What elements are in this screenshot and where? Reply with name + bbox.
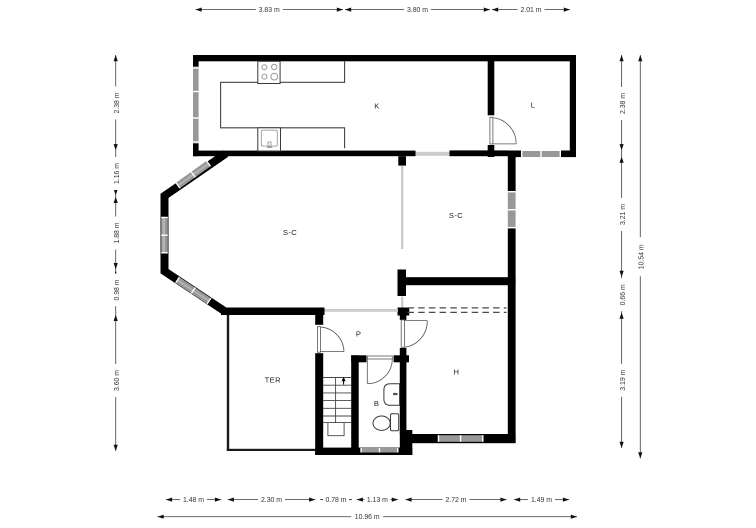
svg-text:0.66 m: 0.66 m — [620, 284, 627, 305]
svg-text:1.88 m: 1.88 m — [114, 222, 121, 243]
svg-text:1.13 m: 1.13 m — [367, 497, 388, 504]
svg-text:L: L — [531, 101, 536, 110]
svg-text:S-C: S-C — [449, 211, 463, 220]
svg-text:H: H — [454, 368, 460, 377]
svg-text:1.16 m: 1.16 m — [114, 163, 121, 184]
svg-text:2.38 m: 2.38 m — [620, 93, 627, 114]
svg-text:3.83 m: 3.83 m — [259, 7, 280, 14]
svg-text:2.30 m: 2.30 m — [261, 497, 282, 504]
svg-text:1.49 m: 1.49 m — [531, 497, 552, 504]
svg-text:2.72 m: 2.72 m — [445, 497, 466, 504]
svg-text:K: K — [374, 101, 379, 110]
svg-text:3.19 m: 3.19 m — [620, 369, 627, 390]
svg-text:TER: TER — [265, 376, 282, 385]
svg-text:0.98 m: 0.98 m — [114, 279, 121, 300]
svg-text:3.80 m: 3.80 m — [407, 7, 428, 14]
svg-text:P: P — [356, 330, 361, 339]
svg-text:3.60 m: 3.60 m — [114, 370, 121, 391]
svg-text:10.54 m: 10.54 m — [639, 244, 646, 269]
svg-text:B: B — [374, 399, 379, 408]
svg-text:2.01 m: 2.01 m — [520, 7, 541, 14]
svg-text:1.48 m: 1.48 m — [183, 497, 204, 504]
svg-text:10.96 m: 10.96 m — [355, 514, 380, 521]
svg-text:S-C: S-C — [283, 228, 297, 237]
svg-text:3.21 m: 3.21 m — [620, 204, 627, 225]
svg-text:2.38 m: 2.38 m — [114, 92, 121, 113]
svg-text:0.78 m: 0.78 m — [325, 497, 346, 504]
